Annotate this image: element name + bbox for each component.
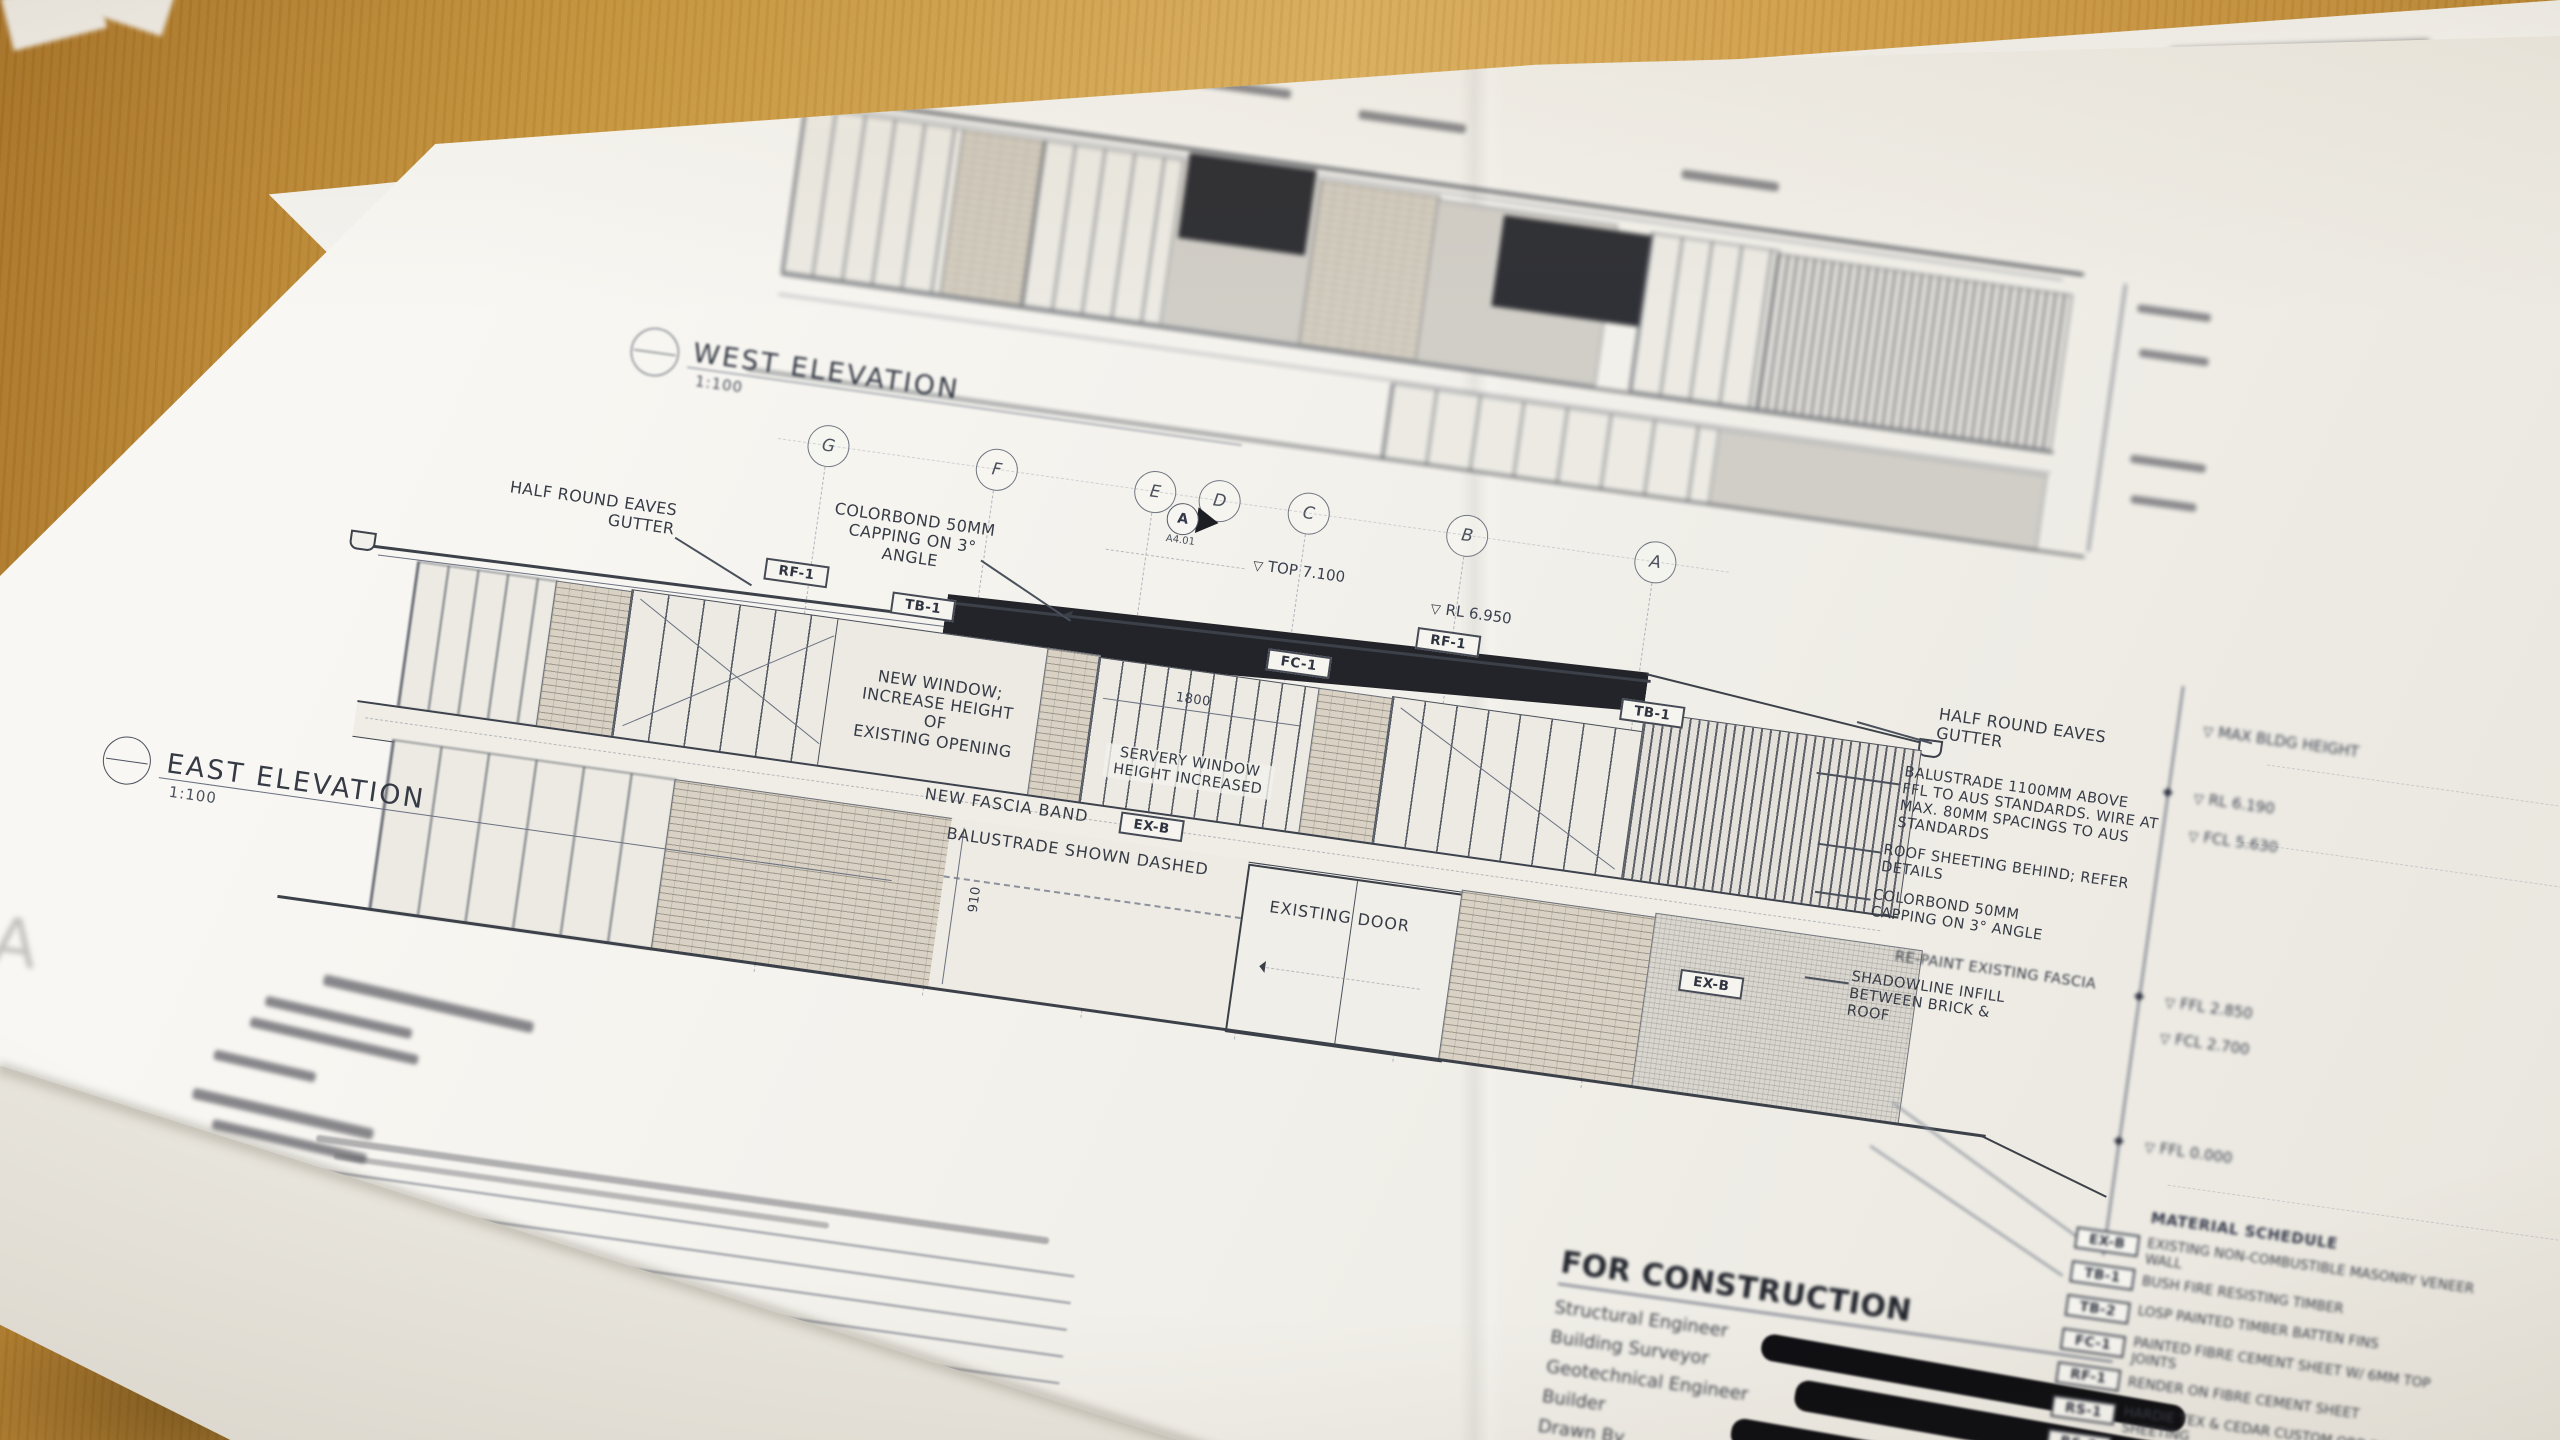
ground-step-line [1982,1135,2107,1197]
level-triangle-icon: ▽ [1430,602,1442,618]
datum-dash-line [778,438,1729,573]
west-window [1629,233,1780,410]
east-elevation-scale: 1:100 [168,783,218,808]
leader-line [1818,843,1882,853]
tag-rf1: RF-1 [763,558,829,589]
dimension-1800: 1800 [1175,690,1212,710]
level-top-7100-text: TOP 7.100 [1267,558,1346,587]
dashdot-line [2168,1185,2560,1264]
upper-brick-pier [1027,648,1101,804]
leader-line [1815,891,1871,900]
west-wall [1415,200,1618,387]
grid-line-G [754,467,826,972]
section-marker-label: A [1165,501,1201,537]
dashdot-line [2236,841,2560,914]
leader-line [1805,976,1849,984]
level-triangle-icon: ▽ [2187,829,2199,845]
tag-fc1: FC-1 [1266,648,1332,679]
garage-wall [1631,913,1923,1125]
level-triangle-icon: ▽ [2159,1031,2171,1047]
door-leaf-line [1334,881,1359,1046]
grid-bubble-A: A [1632,539,1679,586]
contact-text-bar [249,1017,419,1065]
leader-line [981,560,1071,622]
level-triangle-icon: ▽ [2144,1140,2156,1156]
west-elevation-title: WEST ELEVATION [691,338,962,406]
schedule-code-fc1: FC-1 [2060,1328,2126,1359]
west-brick [940,129,1046,306]
west-window [781,107,965,295]
west-level-bar [2139,349,2209,367]
window-diagonal [1400,707,1615,869]
schedule-desc-fc1: PAINTED FIBRE CEMENT SHEET W/ 6MM TOP JO… [2130,1336,2476,1415]
detail-marker-icon [100,733,154,787]
dashdot-line [2267,764,2560,835]
existing-door [1225,864,1466,1063]
contact-text-bar [264,996,412,1039]
west-label-underline [687,367,1242,446]
annotation-servery-window: SERVERY WINDOW HEIGHT INCREASED [1102,743,1275,800]
fascia-band [352,700,1898,953]
level-ffl-2850-text: FFL 2.850 [2179,995,2254,1023]
west-note-bar [1681,169,1779,192]
window-diagonal [622,635,834,726]
roof-capping-line [945,601,1651,683]
grid-bubble-C: C [1285,490,1332,537]
west-parapet-line2 [825,105,2063,280]
level-tick [2134,992,2144,1002]
west-fascia-line2 [778,294,2051,474]
schedule-heading: MATERIAL SCHEDULE [2150,1209,2339,1253]
fascia-dash-line [365,717,1880,931]
contact-text-bar [322,974,534,1033]
annotation-shadowline: SHADOWLINE INFILL BETWEEN BRICK & ROOF [1846,969,2006,1041]
annotation-new-window: NEW WINDOW; INCREASE HEIGHT OF EXISTING … [842,663,1031,763]
grid-line-E [1080,513,1152,1018]
grid-bubble-B: B [1443,512,1490,559]
level-top-7100: ▽TOP 7.100 [1252,555,1346,586]
leader-line [1817,772,1900,785]
grid-line-C [1234,534,1306,1039]
leader-line [675,537,752,586]
annotation-existing-door: EXISTING DOOR [1268,897,1411,936]
section-marker-sheet: A4.01 [1165,533,1195,548]
level-fcl-5630-text: FCL 5.630 [2202,828,2279,856]
level-rl-6950-text: RL 6.950 [1444,601,1512,628]
schedule-leader [1892,1102,2079,1238]
level-ffl-0000: ▽FFL 0.000 [2144,1137,2234,1167]
west-level-bar [2130,495,2196,512]
grid-bubble-F: F [973,446,1020,493]
west-parapet-line [806,94,2084,276]
grid-bubble-D: D [1196,477,1243,524]
west-lower-window [1381,383,1720,504]
logo-fragment-1: ECCA [0,879,52,986]
gutter-left-icon [349,530,377,552]
tag-tb1-2: TB-1 [1619,698,1685,729]
level-fcl-2700-text: FCL 2.700 [2174,1030,2251,1058]
servery-window [1078,657,1320,835]
level-leader [1106,549,1245,569]
west-level-line [2087,284,2126,552]
dimension-910: 910 [966,885,985,913]
field-builder: Builder [1541,1386,1607,1416]
schedule-code-tb2: TB-2 [2064,1294,2130,1325]
level-max-height-text: MAX BLDG HEIGHT [2217,723,2360,761]
level-triangle-icon: ▽ [1252,558,1264,574]
annotation-balustrade-1100: BALUSTRADE 1100MM ABOVE FFL TO AUS STAND… [1896,764,2161,867]
dimension-line-v [942,828,965,985]
lower-window-existing [368,739,676,949]
schedule-desc-tb2: LOSP PAINTED TIMBER BATTEN FINS [2137,1304,2481,1367]
grid-bubble-E: E [1132,468,1179,515]
tag-exb: EX-B [1118,811,1184,842]
tag-tb1: TB-1 [890,592,956,623]
level-triangle-icon: ▽ [2164,996,2176,1012]
west-ground-line [747,368,2084,558]
west-lower-wall [1708,429,2047,550]
west-window [1021,140,1185,325]
level-tick [2114,1136,2124,1146]
lower-brick-pier [651,779,954,989]
annotation-roof-sheeting: ROOF SHEETING BEHIND; REFER DETAILS [1880,842,2130,910]
level-boundary-line [2102,686,2184,1256]
west-dark-window [1491,215,1650,327]
roof-line-left2 [378,554,944,627]
lower-brick-pier [1438,890,1657,1088]
west-elevation-scale: 1:100 [694,372,744,397]
section-arrow-icon [1195,507,1233,538]
leader-line [1857,721,1932,744]
detail-marker-icon [628,325,682,379]
field-geotechnical-engineer: Geotechnical Engineer [1545,1356,1750,1405]
level-rl-6190-text: RL 6.190 [2207,791,2275,818]
west-note-bar [1358,110,1466,134]
west-fascia-line [781,273,2054,454]
upper-window [611,589,840,767]
dimension-line [1103,698,1301,727]
field-drawn-by: Drawn By [1537,1416,1626,1440]
schedule-desc-tb1: BUSH FIRE RESISTING TIMBER [2141,1274,2485,1337]
schedule-code-tb1: TB-1 [2069,1260,2135,1291]
logo-fragment-2: HTIN [0,955,10,1059]
west-wall [1160,160,1324,345]
annotation-colorbond-2: COLORBOND 50MM CAPPING ON 3° ANGLE [1870,887,2046,945]
door-swing-dash [1261,966,1420,989]
contact-text-bar [213,1049,317,1082]
schedule-code-exb: EX-B [2074,1226,2140,1257]
grid-line-A [1580,583,1652,1088]
east-elevation-title: EAST ELEVATION [165,748,428,815]
upper-brick-pier [1298,688,1394,845]
level-fcl-5630: ▽FCL 5.630 [2187,826,2279,856]
field-building-surveyor: Building Surveyor [1549,1326,1710,1369]
schedule-leader [1870,1145,2063,1276]
upper-window [1371,696,1643,880]
status-for-construction: FOR CONSTRUCTION [1559,1245,1914,1329]
upper-brick-pier [536,581,634,738]
annotation-repaint: RE-PAINT EXISTING FASCIA [1894,949,2098,994]
batten-screen [1621,711,1922,918]
level-fcl-2700: ▽FCL 2.700 [2159,1028,2251,1058]
level-rl-6190: ▽RL 6.190 [2193,789,2276,818]
leader-arrow-icon [1062,611,1078,627]
tag-rf1-2: RF-1 [1415,627,1481,658]
roof-eave-right [1646,673,1924,744]
west-brick [1298,179,1440,361]
grid-bubble-G: G [805,422,852,469]
schedule-desc-exb: EXISTING NON-COMBUSTIBLE MASONRY VENEER … [2144,1237,2490,1316]
annotation-gutter-left: HALF ROUND EAVES GUTTER [505,477,679,538]
level-max-height: ▽MAX BLDG HEIGHT [2202,721,2360,761]
roof-clerestory-wedge [940,571,1650,750]
west-battens [1756,253,2073,450]
grid-line-F [922,490,994,995]
west-dark-window [1178,153,1317,256]
balustrade-dashed-line [944,875,1241,919]
west-level-bar [2137,304,2211,322]
ground-line [277,895,1986,1138]
annotation-gutter-right: HALF ROUND EAVES GUTTER [1935,704,2107,765]
level-ffl-0000-text: FFL 0.000 [2158,1139,2233,1167]
level-triangle-icon: ▽ [2202,724,2214,740]
annotation-balustrade-dashed: BALUSTRADE SHOWN DASHED [945,823,1209,879]
upper-window-existing [397,561,558,727]
field-structural-engineer: Structural Engineer [1553,1297,1729,1342]
east-label-underline [159,777,892,881]
level-triangle-icon: ▽ [2193,792,2205,808]
annotation-new-fascia-band: NEW FASCIA BAND [924,784,1090,826]
level-ffl-2850: ▽FFL 2.850 [2164,993,2254,1023]
deck-opening [928,818,1249,1028]
gutter-right-icon [1917,738,1943,759]
level-tick [2163,788,2173,798]
annotation-colorbond-1: COLORBOND 50MM CAPPING ON 3° ANGLE [814,497,1010,580]
photo-of-architectural-drawings: WEST ELEVATION 1:100 G F E D C B A [0,0,2560,1440]
door-arrow-icon [1253,959,1267,973]
upper-window-new [817,618,1050,796]
window-diagonal [640,599,819,745]
west-level-bar [2130,454,2206,472]
tag-exb-2: EX-B [1678,969,1744,1000]
roof-line-left [367,544,948,620]
level-rl-6950: ▽RL 6.950 [1430,599,1513,628]
grid-line-B [1392,557,1464,1062]
